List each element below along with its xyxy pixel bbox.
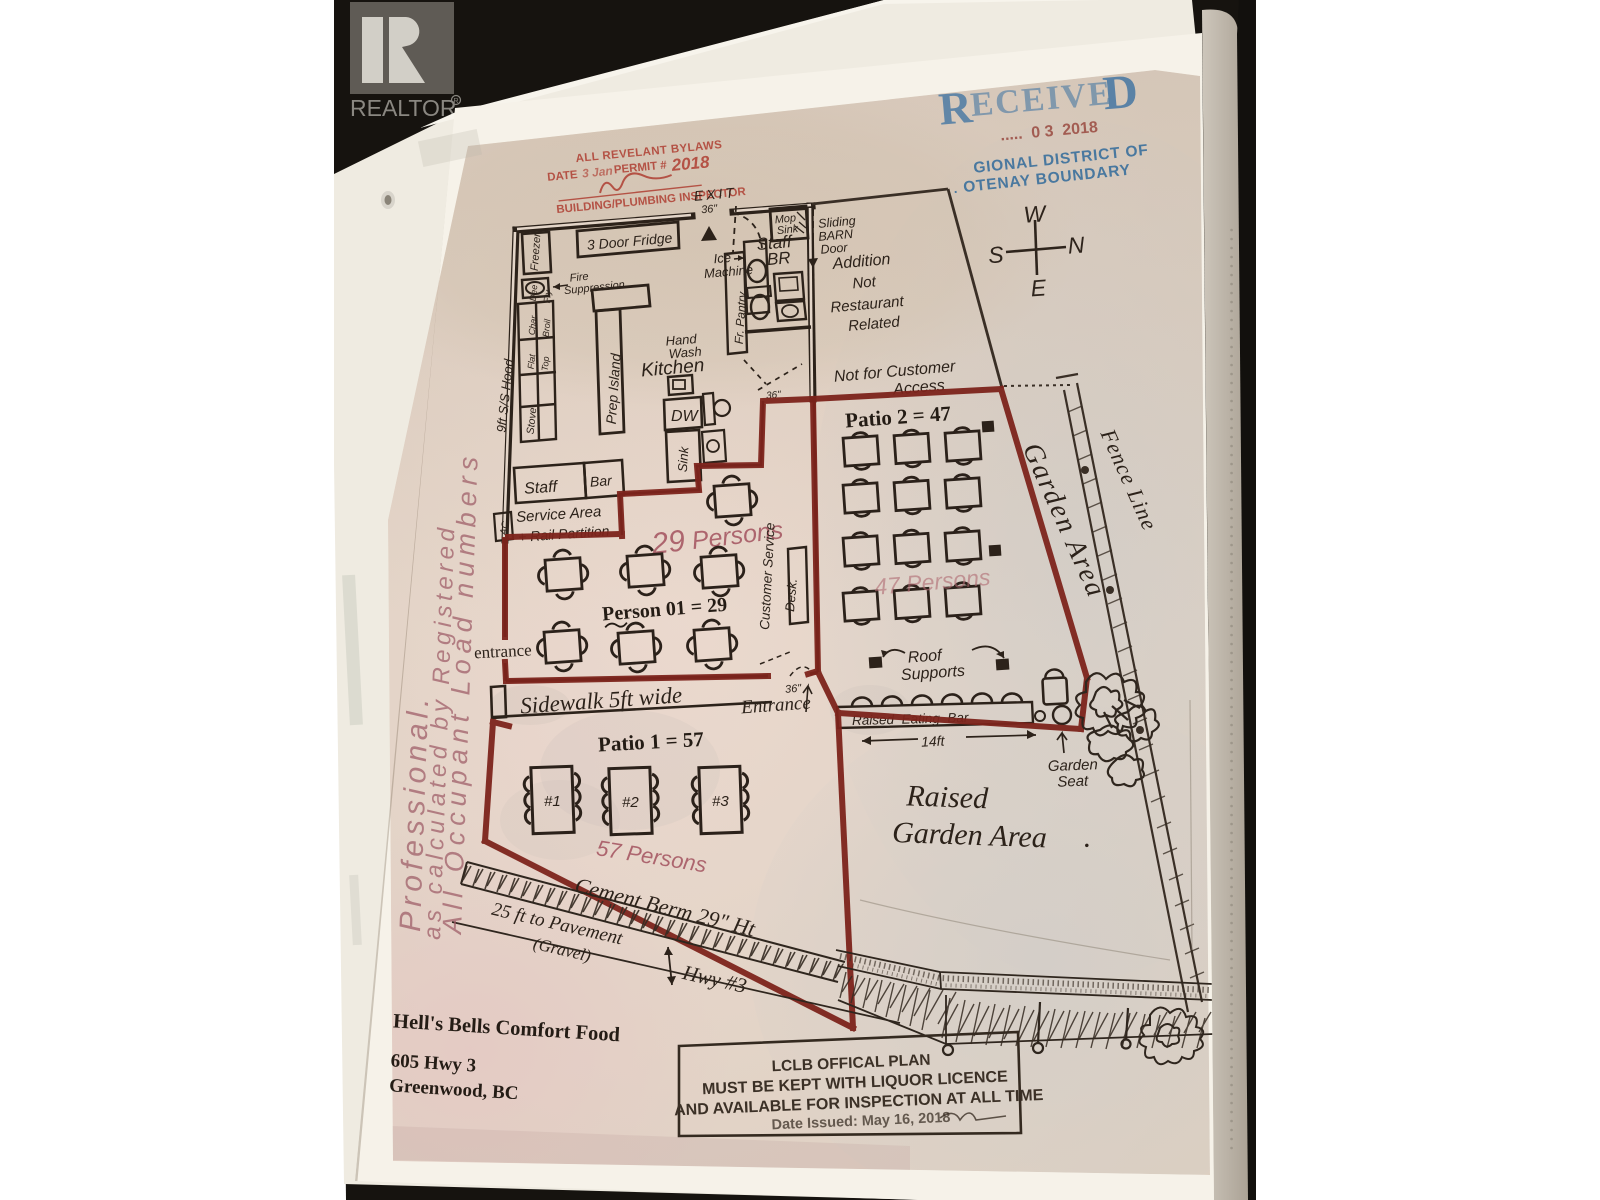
svg-text:#2: #2: [622, 794, 639, 811]
svg-text:W: W: [1023, 200, 1049, 228]
svg-text:36": 36": [785, 682, 803, 695]
svg-text:#3: #3: [712, 793, 729, 810]
svg-text:D: D: [1101, 65, 1140, 121]
svg-text:Sink: Sink: [675, 445, 692, 473]
svg-text:Flat: Flat: [526, 353, 538, 369]
svg-text:R: R: [454, 98, 459, 105]
svg-text:Sink: Sink: [776, 223, 799, 237]
svg-text:Bar: Bar: [589, 472, 613, 490]
svg-text:Top: Top: [540, 356, 551, 372]
svg-text:3 Jan: 3 Jan: [581, 164, 613, 181]
svg-text:36": 36": [701, 203, 719, 216]
svg-text:Raised: Raised: [905, 779, 990, 815]
svg-text:Dee: Dee: [528, 284, 540, 301]
svg-text:Fry: Fry: [542, 289, 553, 303]
svg-text:Garden Area: Garden Area: [892, 816, 1048, 854]
svg-text:entrance: entrance: [474, 640, 532, 662]
svg-text:Staff: Staff: [524, 478, 560, 497]
svg-text:14ft: 14ft: [921, 732, 946, 749]
svg-text:Seat: Seat: [1057, 773, 1089, 791]
svg-text:Char: Char: [527, 314, 539, 335]
svg-text:Desk.: Desk.: [782, 578, 800, 612]
svg-text:#1: #1: [544, 793, 561, 810]
svg-text:REALTOR: REALTOR: [350, 95, 457, 121]
svg-text:2018: 2018: [670, 152, 711, 175]
svg-text:.: .: [1084, 821, 1093, 854]
svg-text:S: S: [987, 241, 1005, 268]
svg-text:E: E: [1030, 274, 1048, 301]
svg-text:Not: Not: [852, 273, 878, 292]
svg-text:N: N: [1067, 232, 1086, 259]
svg-text:Broil: Broil: [541, 318, 553, 338]
svg-text:BR: BR: [766, 248, 791, 269]
svg-text:DW: DW: [671, 408, 700, 425]
